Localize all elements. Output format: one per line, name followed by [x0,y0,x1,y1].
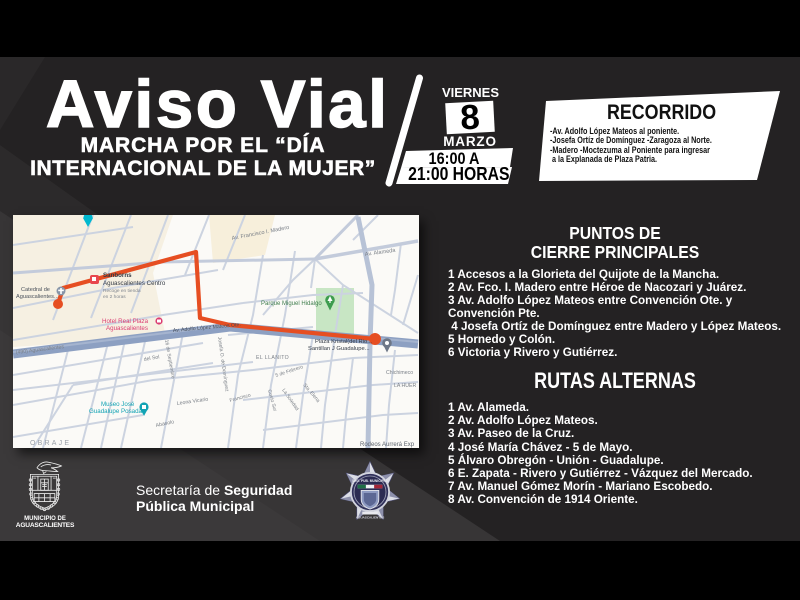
svg-text:Santillan J Guadalupe...: Santillan J Guadalupe... [308,346,370,352]
svg-text:Plaza Kristal(del Rio...: Plaza Kristal(del Rio... [315,339,372,345]
svg-text:Hotel Real Plaza: Hotel Real Plaza [102,318,149,325]
svg-text:Chichimeco: Chichimeco [386,370,413,376]
svg-text:Rodeos Aurrerá Exp: Rodeos Aurrerá Exp [360,442,415,448]
svg-text:Guadalupe Posada: Guadalupe Posada [89,408,143,415]
svg-text:EL LLANITO: EL LLANITO [256,355,289,361]
svg-text:Aguascalientes...: Aguascalientes... [16,294,59,300]
svg-text:LA HUER: LA HUER [394,383,416,389]
svg-text:Parque Miguel Hidalgo: Parque Miguel Hidalgo [261,301,322,307]
svg-text:Aguascalientes: Aguascalientes [106,325,148,332]
svg-text:Recoge en tienda: Recoge en tienda [103,288,141,294]
svg-text:Aguascalientes Centro: Aguascalientes Centro [103,280,166,287]
svg-text:OBRAJE: OBRAJE [30,440,71,447]
svg-text:Museo José: Museo José [101,401,135,408]
svg-text:AGUASCALIENTES: AGUASCALIENTES [356,515,385,519]
svg-text:Catedral de: Catedral de [21,287,50,293]
svg-text:Sanborns: Sanborns [103,272,132,279]
svg-text:SEG. PUB. MUNICIPAL: SEG. PUB. MUNICIPAL [352,479,388,483]
svg-text:en 2 horas: en 2 horas [103,294,126,300]
